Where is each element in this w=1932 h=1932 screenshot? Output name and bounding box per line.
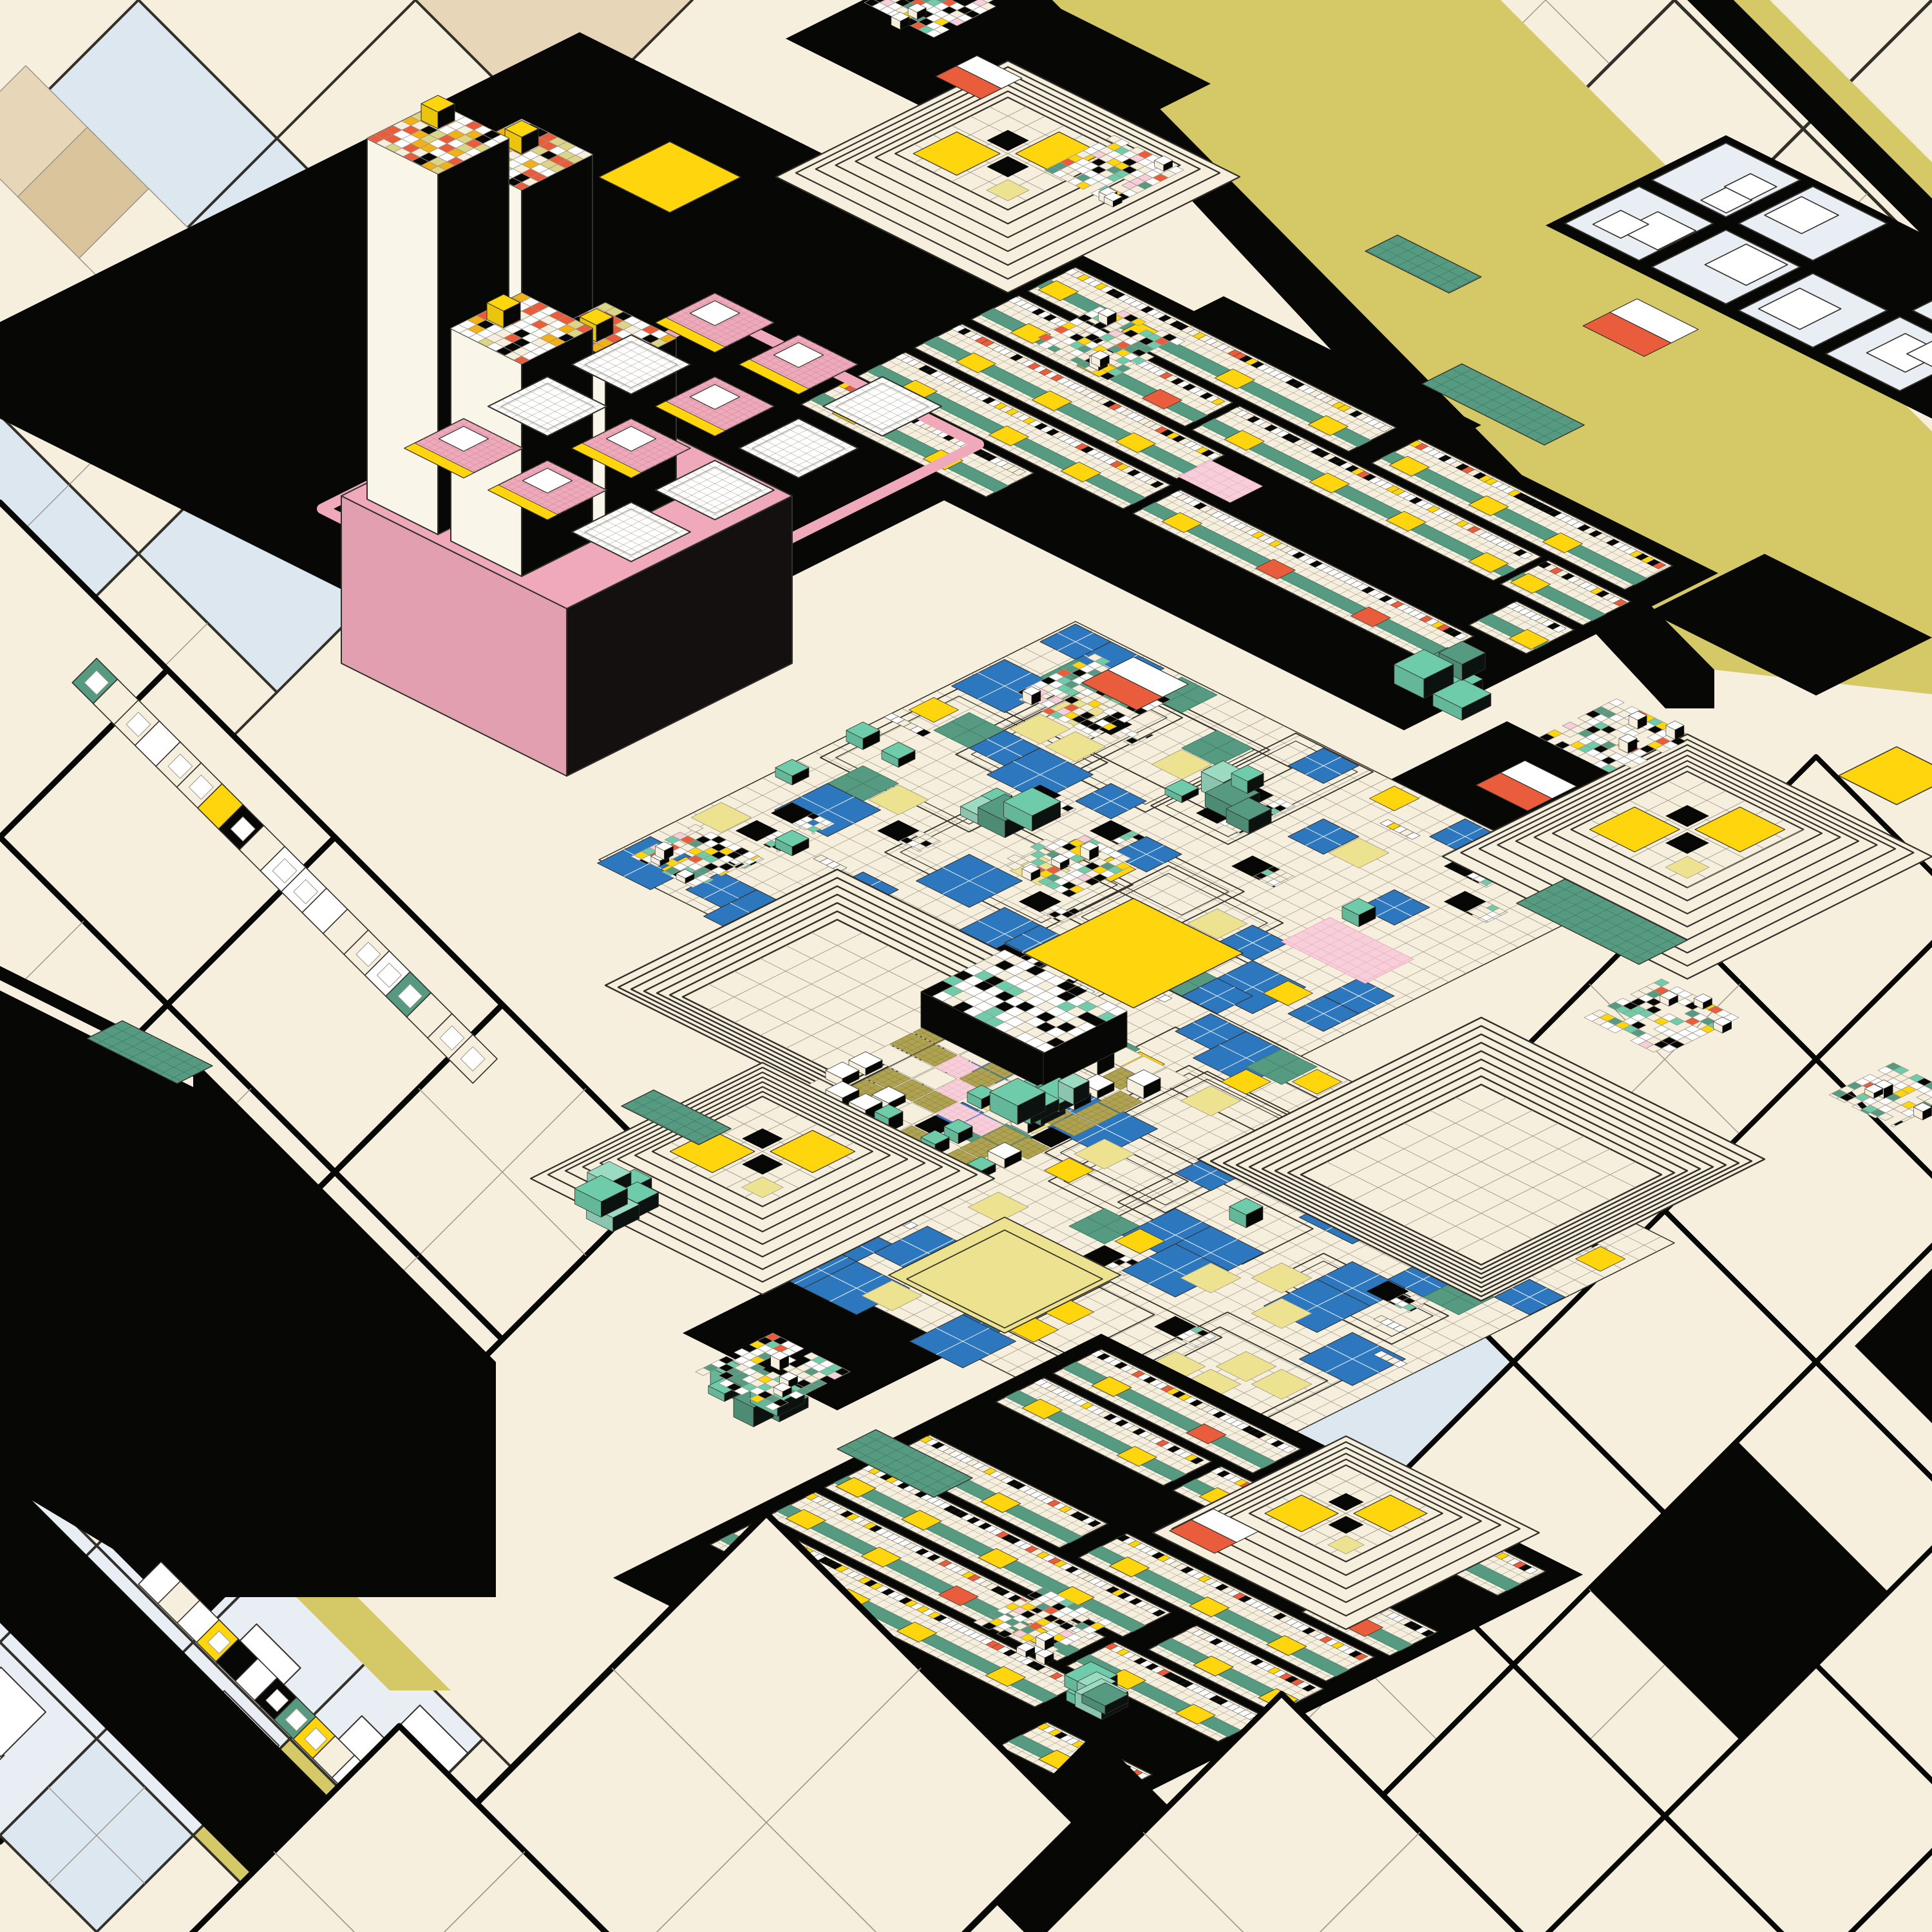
generative-city-artwork	[0, 0, 1932, 1932]
artwork-canvas	[0, 0, 1932, 1932]
